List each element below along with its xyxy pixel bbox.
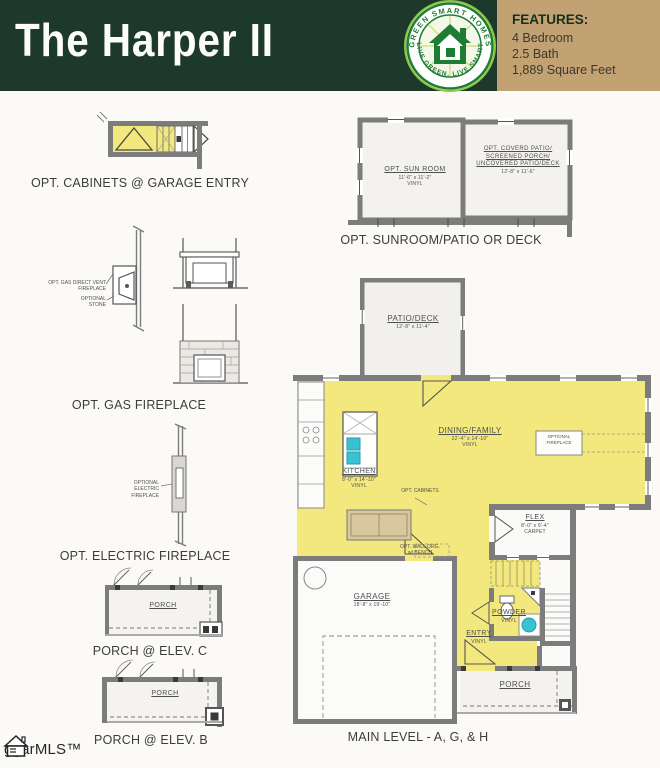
porch-b-room-label: PORCH [151,690,178,699]
kitchen-sink-icon [347,452,360,464]
feature-baths: 2.5 Bath [512,46,657,62]
porch-b-caption: PORCH @ ELEV. B [94,733,208,747]
opt-cabinets-note: OPT. CABINETS [401,488,439,494]
covered-patio-label: OPT. COVERD PATIO/ SCREENED PORCH/ UNCOV… [476,146,559,175]
stone-note: OPTIONAL STONE [81,296,106,309]
mls-house-icon [3,734,29,758]
flex-label: FLEX 8'-0" x 9'-4" CARPET [521,514,549,535]
plan-title: The Harper II [15,13,274,67]
stairs-down [545,588,570,641]
feature-sqft: 1,889 Square Feet [512,62,657,78]
gas-vent-note: OPT. GAS DIRECT VENT FIREPLACE [48,280,106,293]
wall-org-note: OPT. WALL ORG. w/ BENCH [400,544,440,557]
cabinets-garage-caption: OPT. CABINETS @ GARAGE ENTRY [31,176,249,190]
sunroom-patio-drawing [348,108,578,243]
gas-fireplace-caption: OPT. GAS FIREPLACE [72,398,206,412]
green-smart-homes-logo-icon: GREEN SMART HOMES LIVE GREEN. LIVE SMART [404,0,497,93]
main-level-caption: MAIN LEVEL - A, G, & H [348,730,489,744]
garage-label: GARAGE 18'-8" x 19'-10" [354,592,391,608]
kitchen-sink-icon [347,438,360,450]
porch-c-room-label: PORCH [149,602,176,611]
kitchen-cabinet-run [298,382,324,508]
dining-family-label: DINING/FAMILY 22'-4" x 14'-10" VINYL [438,426,501,449]
kitchen-label: KITCHEN 8'-0" x 14'-10" VINYL [342,468,376,489]
electric-fireplace-drawing [148,424,273,549]
sunroom-caption: OPT. SUNROOM/PATIO OR DECK [340,233,541,247]
sun-room-label: OPT. SUN ROOM 11'-6" x 11'-2" VINYL [384,166,445,187]
header-banner: The Harper II FEATURES: 4 Bedroom 2.5 Ba… [0,0,660,91]
feature-bedrooms: 4 Bedroom [512,30,657,46]
electric-fireplace-caption: OPT. ELECTRIC FIREPLACE [60,549,231,563]
kitchen-island [343,412,377,476]
main-porch-label: PORCH [500,680,531,690]
entry-label: ENTRY VINYL [466,630,492,645]
lower-cabinet [347,510,411,540]
optional-fireplace-note: OPTIONAL FIREPLACE [546,434,571,445]
mls-watermark: ggarMLS™ [3,741,81,758]
main-level-plan-drawing [285,248,660,753]
page: The Harper II FEATURES: 4 Bedroom 2.5 Ba… [0,0,660,768]
patio-deck-label: PATIO/DECK 12'-8" x 11'-4" [387,314,438,330]
features-heading: FEATURES: [512,12,657,27]
powder-label: POWDER VINYL [492,609,526,624]
gas-fireplace-drawing [83,224,278,414]
electric-fireplace-note: OPTIONAL ELECTRIC FIREPLACE [131,480,159,499]
